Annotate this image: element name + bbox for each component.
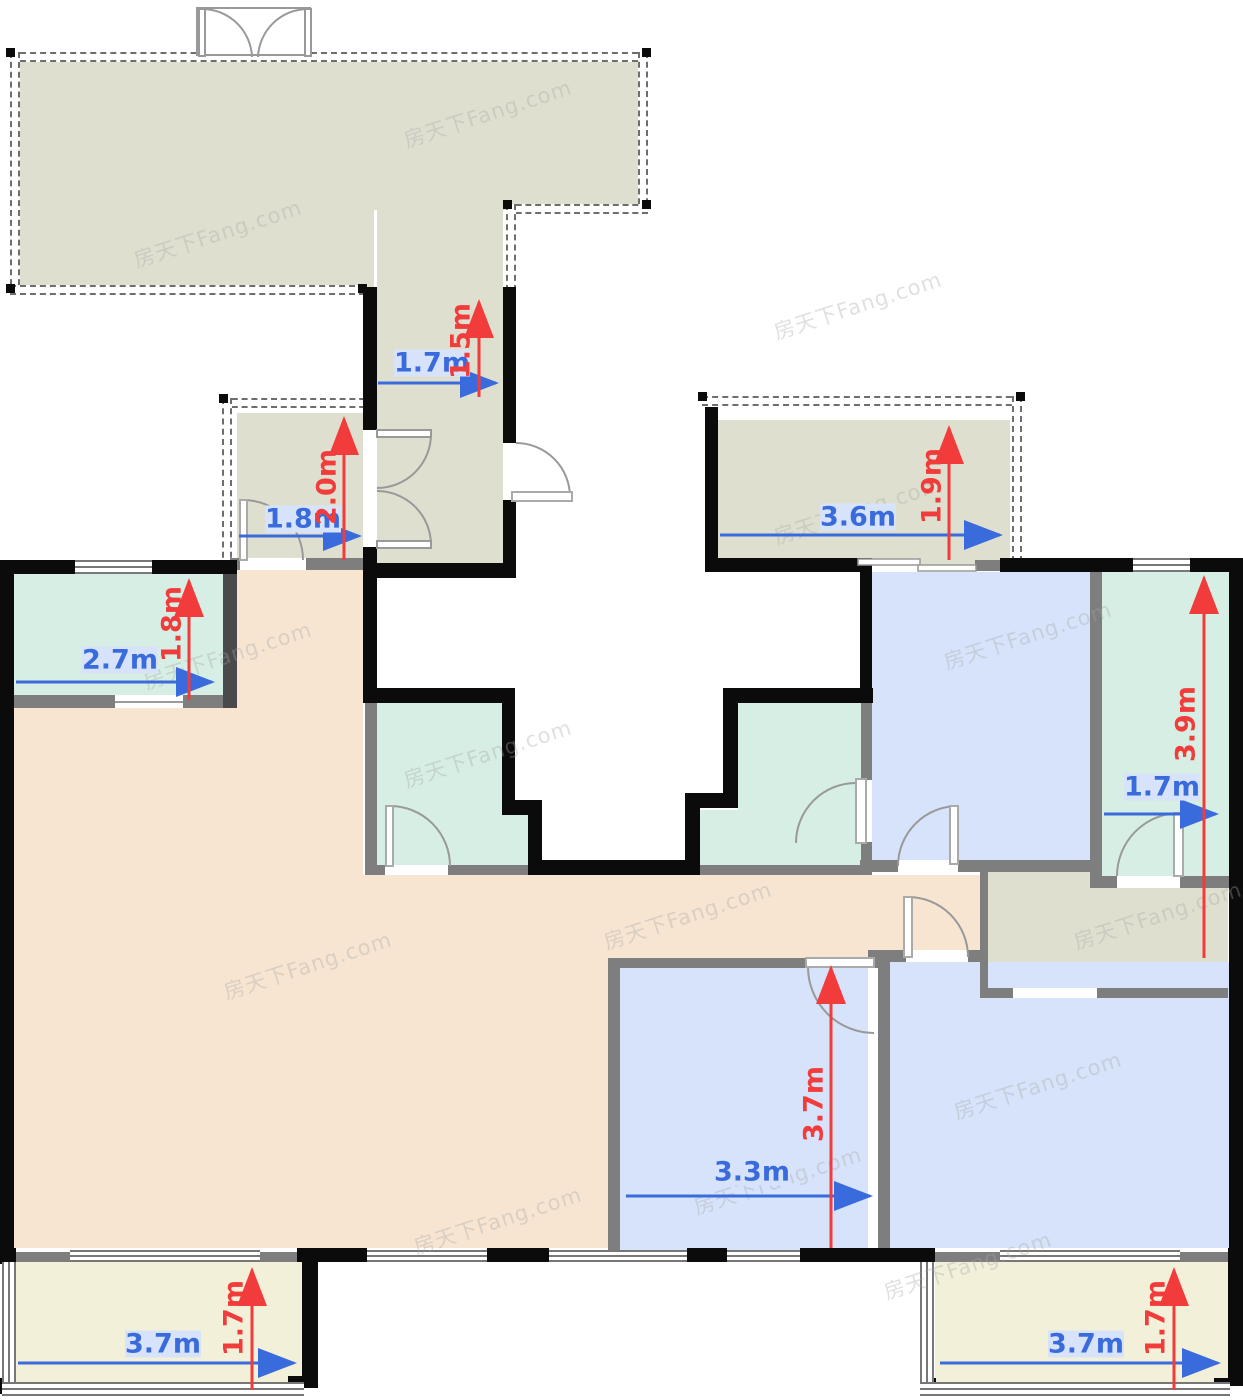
room-bath-right-lower	[700, 810, 863, 865]
terrace-dashed-cut-h	[506, 204, 648, 214]
terrace-dashed-left	[10, 52, 20, 295]
wall-bath-left-top	[363, 688, 515, 703]
dash-anchor	[698, 392, 707, 401]
gap-bath-left-door	[385, 865, 448, 875]
dim-label-bedroom-mid-height: 3.7m	[801, 1066, 828, 1142]
room-bath-right-upper	[738, 703, 863, 810]
gap-storage-door	[240, 558, 306, 570]
storage-dashed-left	[222, 398, 232, 568]
wall-corridor-bottom	[363, 563, 516, 578]
window-bottom	[727, 1250, 800, 1262]
wall-room-tl-right	[223, 560, 237, 708]
terrace-dashed-cut-v	[506, 204, 516, 291]
wall-bottom-seg-b	[487, 1248, 549, 1262]
wall-bath-right-bottom	[685, 865, 872, 875]
room-balcony-bottom-right	[935, 1262, 1228, 1384]
storage-dashed-top	[222, 398, 375, 408]
dim-label-storage-height: 2.0m	[314, 449, 341, 525]
dash-anchor	[503, 200, 512, 209]
door-entry	[512, 443, 572, 501]
wall-bottom-seg-b	[800, 1248, 880, 1262]
gap-bath-right-door	[861, 780, 872, 842]
door-terrace-double	[197, 8, 311, 57]
gap-bedroom3-door	[807, 958, 874, 968]
gap-room-tl-opening	[115, 695, 183, 708]
dash-anchor	[219, 394, 228, 403]
dim-label-balcony-br-width: 3.7m	[1048, 1331, 1124, 1358]
window-room-tl-top	[75, 560, 152, 574]
wall-top-right-seg	[1000, 558, 1133, 572]
watermark: 房天下Fang.com	[770, 264, 946, 347]
wall-top-left-seg	[0, 560, 75, 574]
window-bottom	[549, 1250, 687, 1262]
dim-label-balcony-tr-width: 3.6m	[820, 504, 896, 531]
wall-bedroom3-east	[878, 958, 890, 1250]
dim-label-room-tl-width: 2.7m	[82, 647, 158, 674]
room-bedroom-middle	[620, 968, 868, 1250]
room-right-tall	[1102, 570, 1229, 876]
floor-plan: 房天下Fang.com 房天下Fang.com 房天下Fang.com 房天下F…	[0, 0, 1243, 1400]
dim-label-bedroom-mid-width: 3.3m	[714, 1159, 790, 1186]
wall-bath-right-top	[723, 688, 873, 703]
wall-bath-right-west-lower	[685, 808, 700, 865]
window-living-balcony	[70, 1250, 260, 1262]
window-balcony-br-bottom	[920, 1382, 1230, 1396]
terrace-dashed-bottom-left	[10, 285, 365, 295]
wall-bottom-seg	[260, 1252, 297, 1262]
wall-bedroom1-west	[860, 558, 872, 693]
dash-anchor	[642, 48, 651, 57]
room-bedroom-bottom-right	[880, 962, 1229, 1248]
gap-room-right-door	[1117, 876, 1180, 888]
dim-label-room-right-width: 1.7m	[1124, 774, 1200, 801]
window-balcony-bl-bottom	[2, 1382, 304, 1396]
wall-bath-left-step	[502, 800, 542, 815]
wall-balcony-tr-left	[705, 407, 718, 572]
wall-bath-left-west	[365, 703, 377, 875]
dash-anchor	[6, 284, 15, 293]
window-room-right-top	[1133, 558, 1190, 572]
dim-label-balcony-br-height: 1.7m	[1143, 1280, 1170, 1356]
terrace-dashed-top	[10, 52, 648, 62]
dash-anchor	[642, 200, 651, 209]
room-bath-left-lower	[377, 810, 540, 865]
dim-label-corridor-height: 1.5m	[448, 303, 475, 379]
dim-label-balcony-tr-height: 1.9m	[919, 448, 946, 524]
room-balcony-bottom-left	[14, 1262, 302, 1384]
wall-bottom-seg-b	[687, 1248, 727, 1262]
dash-anchor	[6, 48, 15, 57]
dim-label-balcony-bl-height: 1.7m	[221, 1280, 248, 1356]
wall-balcony-tr-sliver	[975, 560, 1000, 571]
dim-label-room-tl-height: 1.8m	[159, 586, 186, 662]
dim-label-balcony-bl-width: 3.7m	[125, 1331, 201, 1358]
gap-bedroom1-door	[898, 860, 958, 872]
wall-bath-right-west-upper	[723, 703, 738, 808]
wall-outer-left	[0, 560, 14, 1262]
room-storage	[237, 413, 367, 558]
terrace-dashed-right	[638, 52, 648, 214]
dim-label-room-right-height: 3.9m	[1173, 686, 1200, 762]
gap-hallway-door	[906, 950, 968, 962]
window-balcony-bl-left	[2, 1262, 16, 1384]
room-entry-corridor	[377, 210, 503, 563]
wall-balcony-br-right	[1228, 1262, 1243, 1386]
wall-corridor-right-upper	[503, 287, 516, 443]
gap-closet-opening	[1013, 988, 1097, 998]
balcony-tr-dashed-top	[702, 396, 1022, 406]
wall-bedroom1-bottom	[860, 860, 1090, 872]
wall-void-bottom	[528, 860, 700, 875]
balcony-tr-dashed-right	[1012, 396, 1022, 572]
wall-balcony-bl-right	[302, 1248, 318, 1388]
wall-balcony-tr-bottom	[712, 558, 860, 572]
wall-bottom-seg-b	[880, 1248, 935, 1262]
wall-outer-right	[1229, 558, 1243, 1262]
gap-corridor-double-door	[363, 430, 377, 547]
wall-closet-west	[980, 872, 988, 998]
wall-top-left-seg2	[152, 560, 237, 574]
wall-bottom-seg-b	[1228, 1248, 1243, 1262]
wall-bottom-seg	[1180, 1252, 1228, 1262]
dash-anchor	[1016, 392, 1025, 401]
wall-bedroom3-west	[608, 958, 620, 1250]
